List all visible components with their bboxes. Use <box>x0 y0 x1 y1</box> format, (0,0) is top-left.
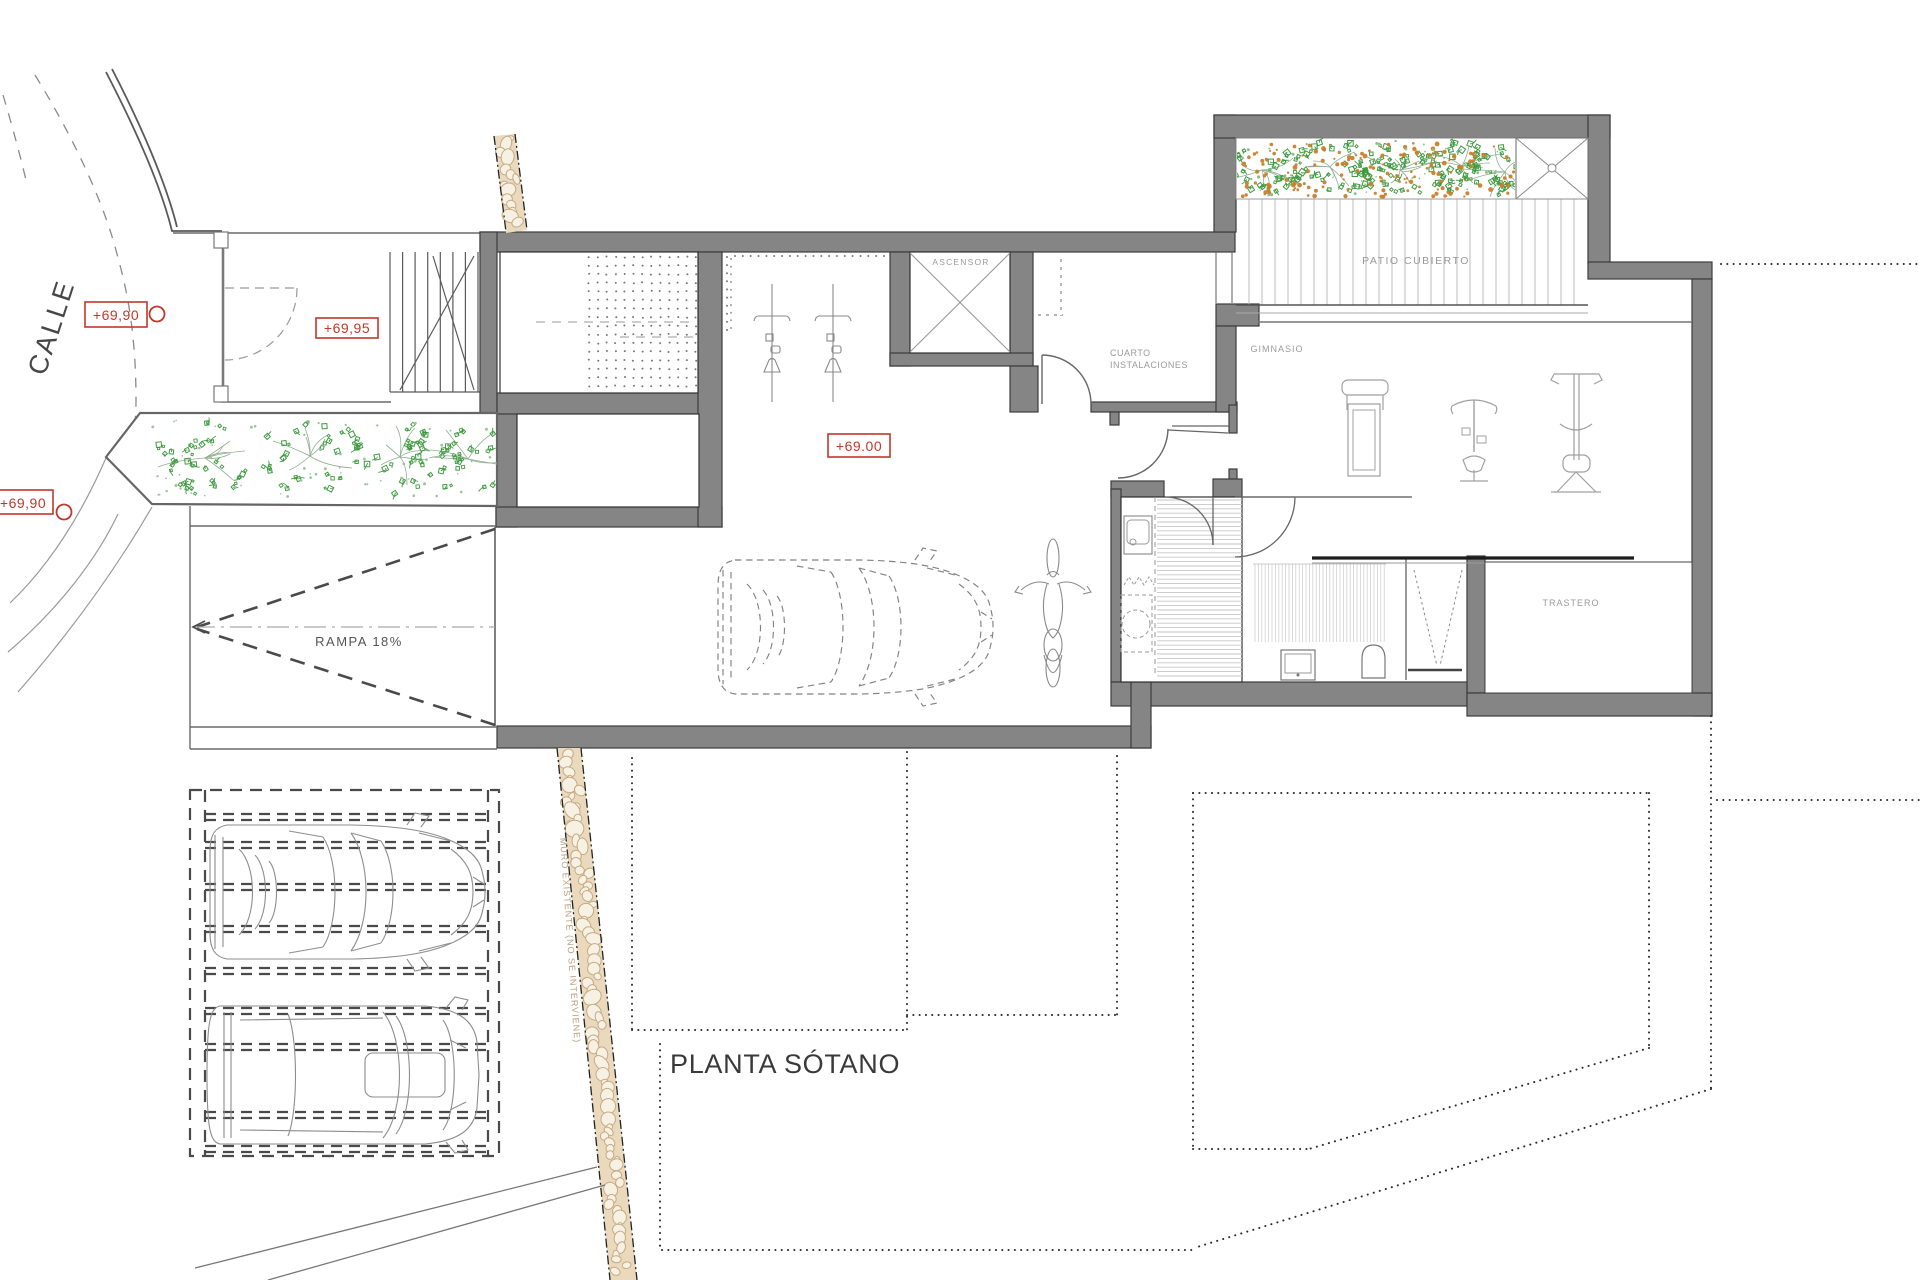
svg-text:CALLE: CALLE <box>22 276 81 379</box>
svg-text:PLANTA SÓTANO: PLANTA SÓTANO <box>670 1048 900 1079</box>
svg-text:CUARTO: CUARTO <box>1110 348 1151 358</box>
svg-text:RAMPA 18%: RAMPA 18% <box>315 634 403 649</box>
svg-text:PATIO CUBIERTO: PATIO CUBIERTO <box>1362 255 1470 267</box>
svg-text:+69.00: +69.00 <box>836 438 882 454</box>
svg-text:+69,95: +69,95 <box>324 320 370 336</box>
svg-text:ASCENSOR: ASCENSOR <box>932 257 989 267</box>
svg-text:GIMNASIO: GIMNASIO <box>1250 344 1303 354</box>
svg-text:TRASTERO: TRASTERO <box>1542 598 1599 608</box>
svg-text:+69,90: +69,90 <box>93 307 139 323</box>
svg-text:INSTALACIONES: INSTALACIONES <box>1110 360 1188 370</box>
svg-text:+69,90: +69,90 <box>0 495 46 511</box>
